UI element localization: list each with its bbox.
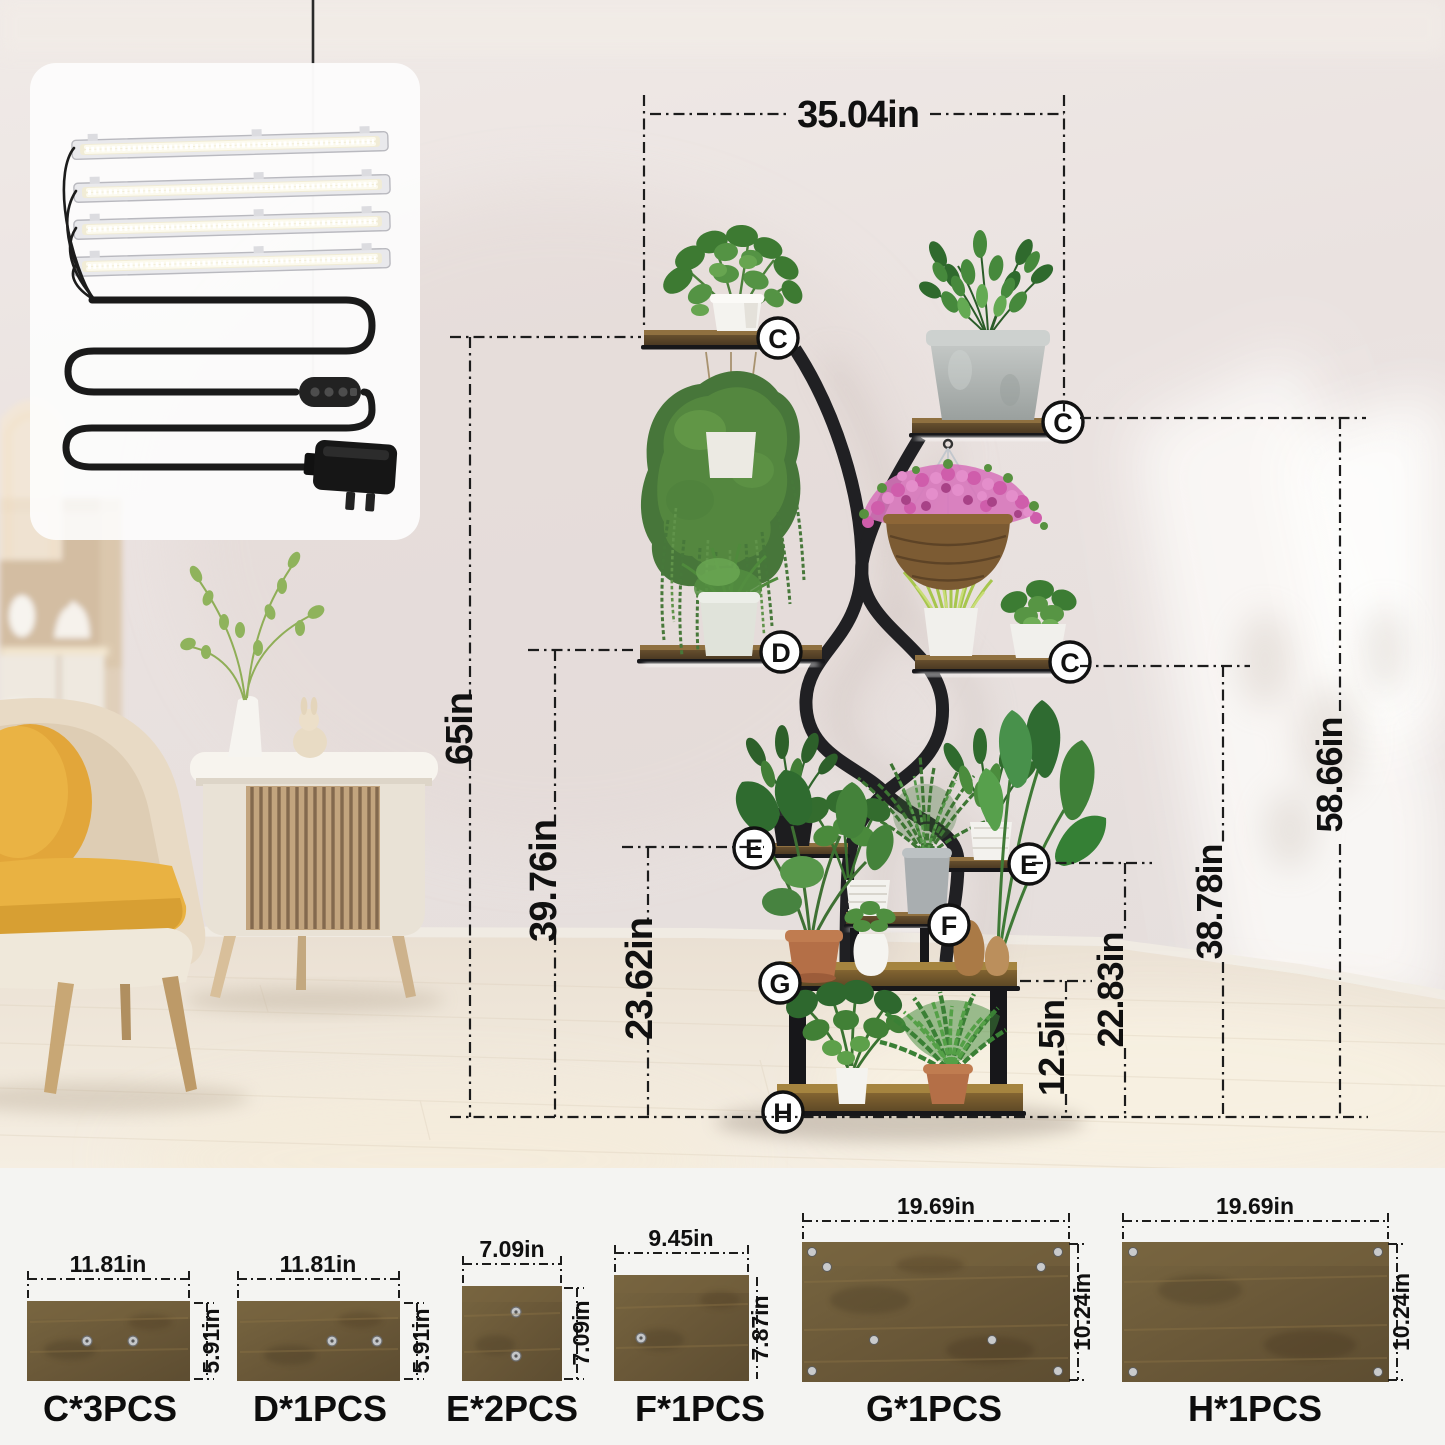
svg-text:E*2PCS: E*2PCS [446,1388,578,1429]
svg-text:58.66in: 58.66in [1309,717,1350,832]
svg-text:G: G [769,969,790,999]
svg-text:11.81in: 11.81in [70,1251,147,1277]
svg-text:G*1PCS: G*1PCS [866,1388,1002,1429]
svg-text:7.09in: 7.09in [568,1300,594,1365]
svg-text:38.78in: 38.78in [1189,844,1230,959]
svg-text:F*1PCS: F*1PCS [635,1388,765,1429]
svg-text:65in: 65in [439,693,481,765]
svg-text:23.62in: 23.62in [619,918,661,1040]
svg-text:11.81in: 11.81in [280,1251,357,1277]
svg-text:F: F [941,911,958,941]
svg-text:H: H [773,1098,793,1128]
svg-text:7.09in: 7.09in [479,1236,544,1262]
svg-text:H*1PCS: H*1PCS [1188,1388,1322,1429]
svg-text:22.83in: 22.83in [1090,932,1131,1047]
svg-text:D: D [771,638,791,668]
svg-text:C: C [1053,408,1073,438]
svg-text:E: E [745,834,763,864]
svg-text:10.24in: 10.24in [1069,1273,1095,1351]
svg-text:35.04in: 35.04in [797,94,919,136]
svg-text:12.5in: 12.5in [1031,1000,1072,1096]
svg-text:9.45in: 9.45in [648,1225,713,1251]
svg-text:C*3PCS: C*3PCS [43,1388,177,1429]
svg-text:5.91in: 5.91in [408,1308,434,1373]
svg-text:D*1PCS: D*1PCS [253,1388,387,1429]
svg-text:39.76in: 39.76in [523,820,565,942]
svg-text:C: C [768,324,788,354]
svg-text:19.69in: 19.69in [897,1193,975,1219]
svg-text:7.87in: 7.87in [747,1295,773,1360]
svg-text:5.91in: 5.91in [198,1308,224,1373]
svg-text:19.69in: 19.69in [1216,1193,1294,1219]
svg-text:10.24in: 10.24in [1388,1273,1414,1351]
svg-text:C: C [1060,648,1080,678]
svg-text:E: E [1020,850,1038,880]
